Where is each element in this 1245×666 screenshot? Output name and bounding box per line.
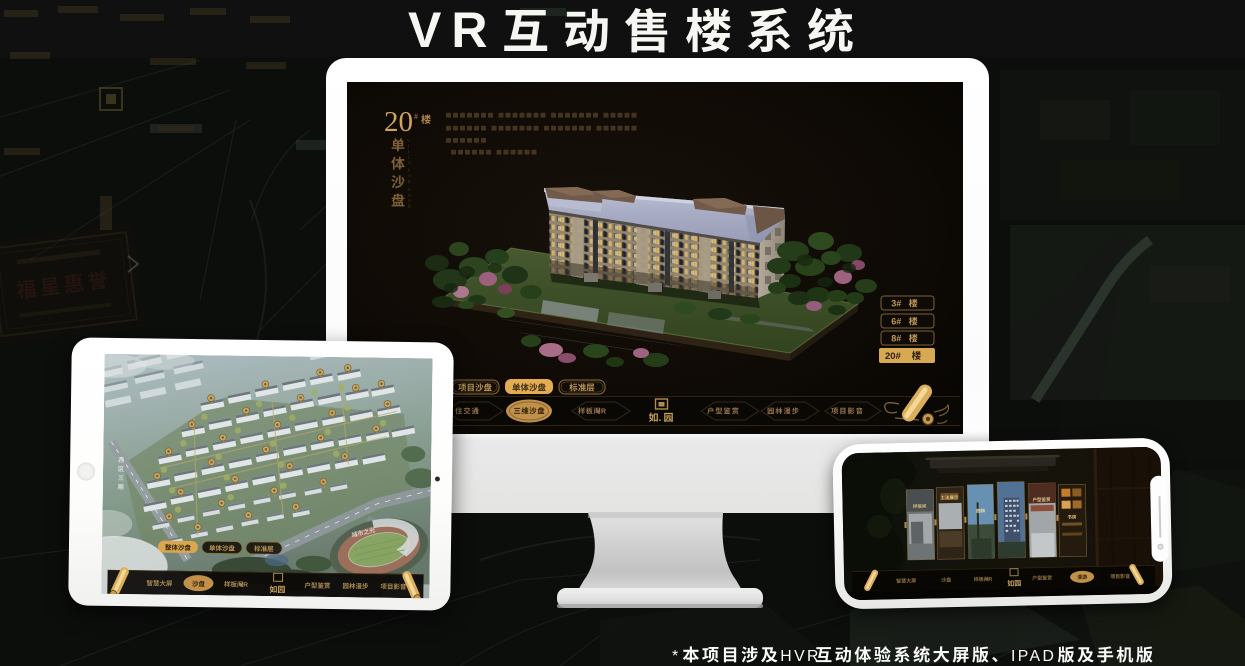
svg-text:HVR: HVR	[780, 648, 821, 665]
svg-text:6#: 6#	[891, 317, 901, 327]
svg-text:#: #	[414, 112, 418, 121]
svg-text:IPAD: IPAD	[1011, 648, 1056, 665]
svg-text:20: 20	[384, 106, 413, 138]
svg-text:.: .	[659, 413, 662, 424]
svg-text:*: *	[672, 648, 681, 665]
svg-text:VR: VR	[596, 407, 607, 416]
svg-text:3#: 3#	[891, 299, 901, 309]
svg-text:VR: VR	[985, 577, 992, 583]
svg-text:8#: 8#	[891, 334, 901, 344]
svg-text:VR: VR	[408, 2, 497, 58]
svg-text:VR: VR	[239, 582, 248, 589]
svg-text:20#: 20#	[885, 351, 902, 362]
